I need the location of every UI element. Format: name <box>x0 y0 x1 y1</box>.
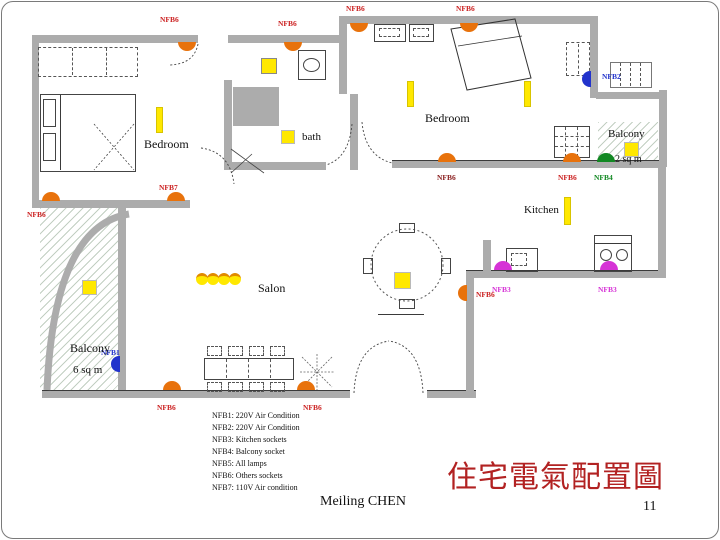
ceiling-lamp <box>394 272 411 289</box>
desk-drawer <box>379 28 400 37</box>
author-name: Meiling CHEN <box>302 494 424 510</box>
nfb-marker-label: NFB6 <box>160 15 179 24</box>
chair <box>270 382 285 392</box>
wall-segment <box>224 162 326 170</box>
wall-segment <box>590 24 598 98</box>
nfb-marker-label: NFB7 <box>159 183 178 192</box>
stove-burner <box>616 249 628 261</box>
room-label-salon: Salon <box>258 281 285 296</box>
nfb-marker-label: NFB6 <box>346 4 365 13</box>
nfb-marker <box>438 153 456 162</box>
wall-segment <box>339 16 347 94</box>
pillow <box>43 99 56 127</box>
nfb-marker <box>297 381 315 390</box>
chair <box>399 299 415 309</box>
dresser-line <box>555 136 589 137</box>
nfb-marker <box>460 23 478 32</box>
washbasin-bowl <box>303 58 320 72</box>
entry-door-arc <box>389 341 423 393</box>
chair <box>249 346 264 356</box>
door-arc <box>362 122 392 163</box>
nfb-marker <box>178 42 196 51</box>
dining-table-line <box>226 359 227 378</box>
ac-unit-fin <box>640 63 641 86</box>
chair <box>207 382 222 392</box>
nfb-marker <box>350 23 368 32</box>
wall-segment <box>483 240 491 274</box>
chair <box>228 382 243 392</box>
bed-2-pillow-line <box>458 36 522 46</box>
wall-segment <box>224 80 232 170</box>
wall-segment <box>350 94 358 170</box>
nfb-marker <box>582 71 591 87</box>
wall-segment <box>658 162 666 278</box>
bed-1-headboard-line <box>60 95 61 170</box>
nfb-marker-label: NFB3 <box>598 285 617 294</box>
wall-segment <box>466 270 666 278</box>
wardrobe <box>38 47 138 77</box>
dresser-line <box>565 127 566 157</box>
round-table <box>371 229 443 301</box>
entry-door-arc <box>354 341 389 393</box>
bench-line <box>378 314 424 315</box>
room-label-bath: bath <box>302 131 321 143</box>
dining-table-line <box>270 359 271 378</box>
room-area-balcony-bl: 6 sq m <box>73 364 102 376</box>
nfb-marker-label: NFB6 <box>157 403 176 412</box>
wall-segment <box>466 278 474 398</box>
chair <box>399 223 415 233</box>
desk-drawer <box>413 28 429 37</box>
chair <box>363 258 373 274</box>
legend-item: NFB6: Others sockets <box>212 471 283 480</box>
nfb-marker-label: NFB2 <box>602 72 621 81</box>
nfb-marker-label: NFB6 <box>476 290 495 299</box>
nfb-marker-label: NFB4 <box>594 173 613 182</box>
nfb-marker <box>458 285 467 301</box>
stove-line <box>595 243 631 244</box>
legend-item: NFB1: 220V Air Condition <box>212 411 300 420</box>
wall-segment <box>42 390 350 398</box>
wall-segment <box>32 200 190 208</box>
room-label-balcony-tr: Balcony <box>608 128 645 140</box>
wardrobe-divider <box>578 44 579 74</box>
kitchen-sink-basin <box>511 253 527 266</box>
ac-unit-fin <box>630 63 631 86</box>
legend-item: NFB5: All lamps <box>212 459 267 468</box>
nfb-marker-label: NFB6 <box>456 4 475 13</box>
slide: NFB6 NFB6 NFB6 NFB6 NFB2 NFB6 NFB6 NFB4 … <box>1 1 719 539</box>
nfb-marker <box>111 356 120 372</box>
wall-segment <box>32 35 198 43</box>
legend-item: NFB3: Kitchen sockets <box>212 435 287 444</box>
wardrobe-divider <box>106 48 107 75</box>
chair <box>441 258 451 274</box>
room-label-balcony-bl: Balcony <box>70 341 110 356</box>
wall-segment <box>659 90 667 167</box>
nfb-marker-label: NFB6 <box>558 173 577 182</box>
dining-table <box>204 358 294 380</box>
nfb-marker <box>163 381 181 390</box>
legend-item: NFB7: 110V Air condition <box>212 483 298 492</box>
nfb-marker-label: NFB6 <box>437 173 456 182</box>
room-label-kitchen: Kitchen <box>524 204 559 216</box>
ceiling-lamp <box>281 130 295 144</box>
wall-segment <box>596 92 666 99</box>
room-label-bedroom2: Bedroom <box>425 111 470 126</box>
lamp-bar <box>407 81 414 107</box>
stove-burner <box>600 249 612 261</box>
dresser-line <box>577 127 578 157</box>
chair <box>207 346 222 356</box>
page-number: 11 <box>643 499 656 515</box>
pillow <box>43 133 56 161</box>
ceiling-lamp <box>82 280 97 295</box>
legend-item: NFB2: 220V Air Condition <box>212 423 300 432</box>
nfb-marker-label: NFB6 <box>303 403 322 412</box>
slide-title: 住宅電氣配置圖 <box>432 452 664 496</box>
chair <box>249 382 264 392</box>
lamp-bar <box>524 81 531 107</box>
dresser-line <box>555 146 589 147</box>
wardrobe-divider <box>72 48 73 75</box>
lamp-bar <box>564 197 571 225</box>
room-area-balcony-tr: 2 sq m <box>615 154 642 165</box>
nfb-marker-label: NFB6 <box>27 210 46 219</box>
salon-bulb <box>229 273 241 285</box>
nfb-marker-label: NFB6 <box>278 19 297 28</box>
door-arc <box>326 124 352 165</box>
dining-table-line <box>248 359 249 378</box>
exhaust-fan <box>261 58 277 74</box>
nfb-marker <box>42 192 60 201</box>
room-label-bedroom1: Bedroom <box>144 137 189 152</box>
chair <box>228 346 243 356</box>
chair <box>270 346 285 356</box>
utility-shaft <box>233 87 279 126</box>
nfb-marker <box>167 192 185 201</box>
legend-item: NFB4: Balcony socket <box>212 447 285 456</box>
lamp-bar <box>156 107 163 133</box>
